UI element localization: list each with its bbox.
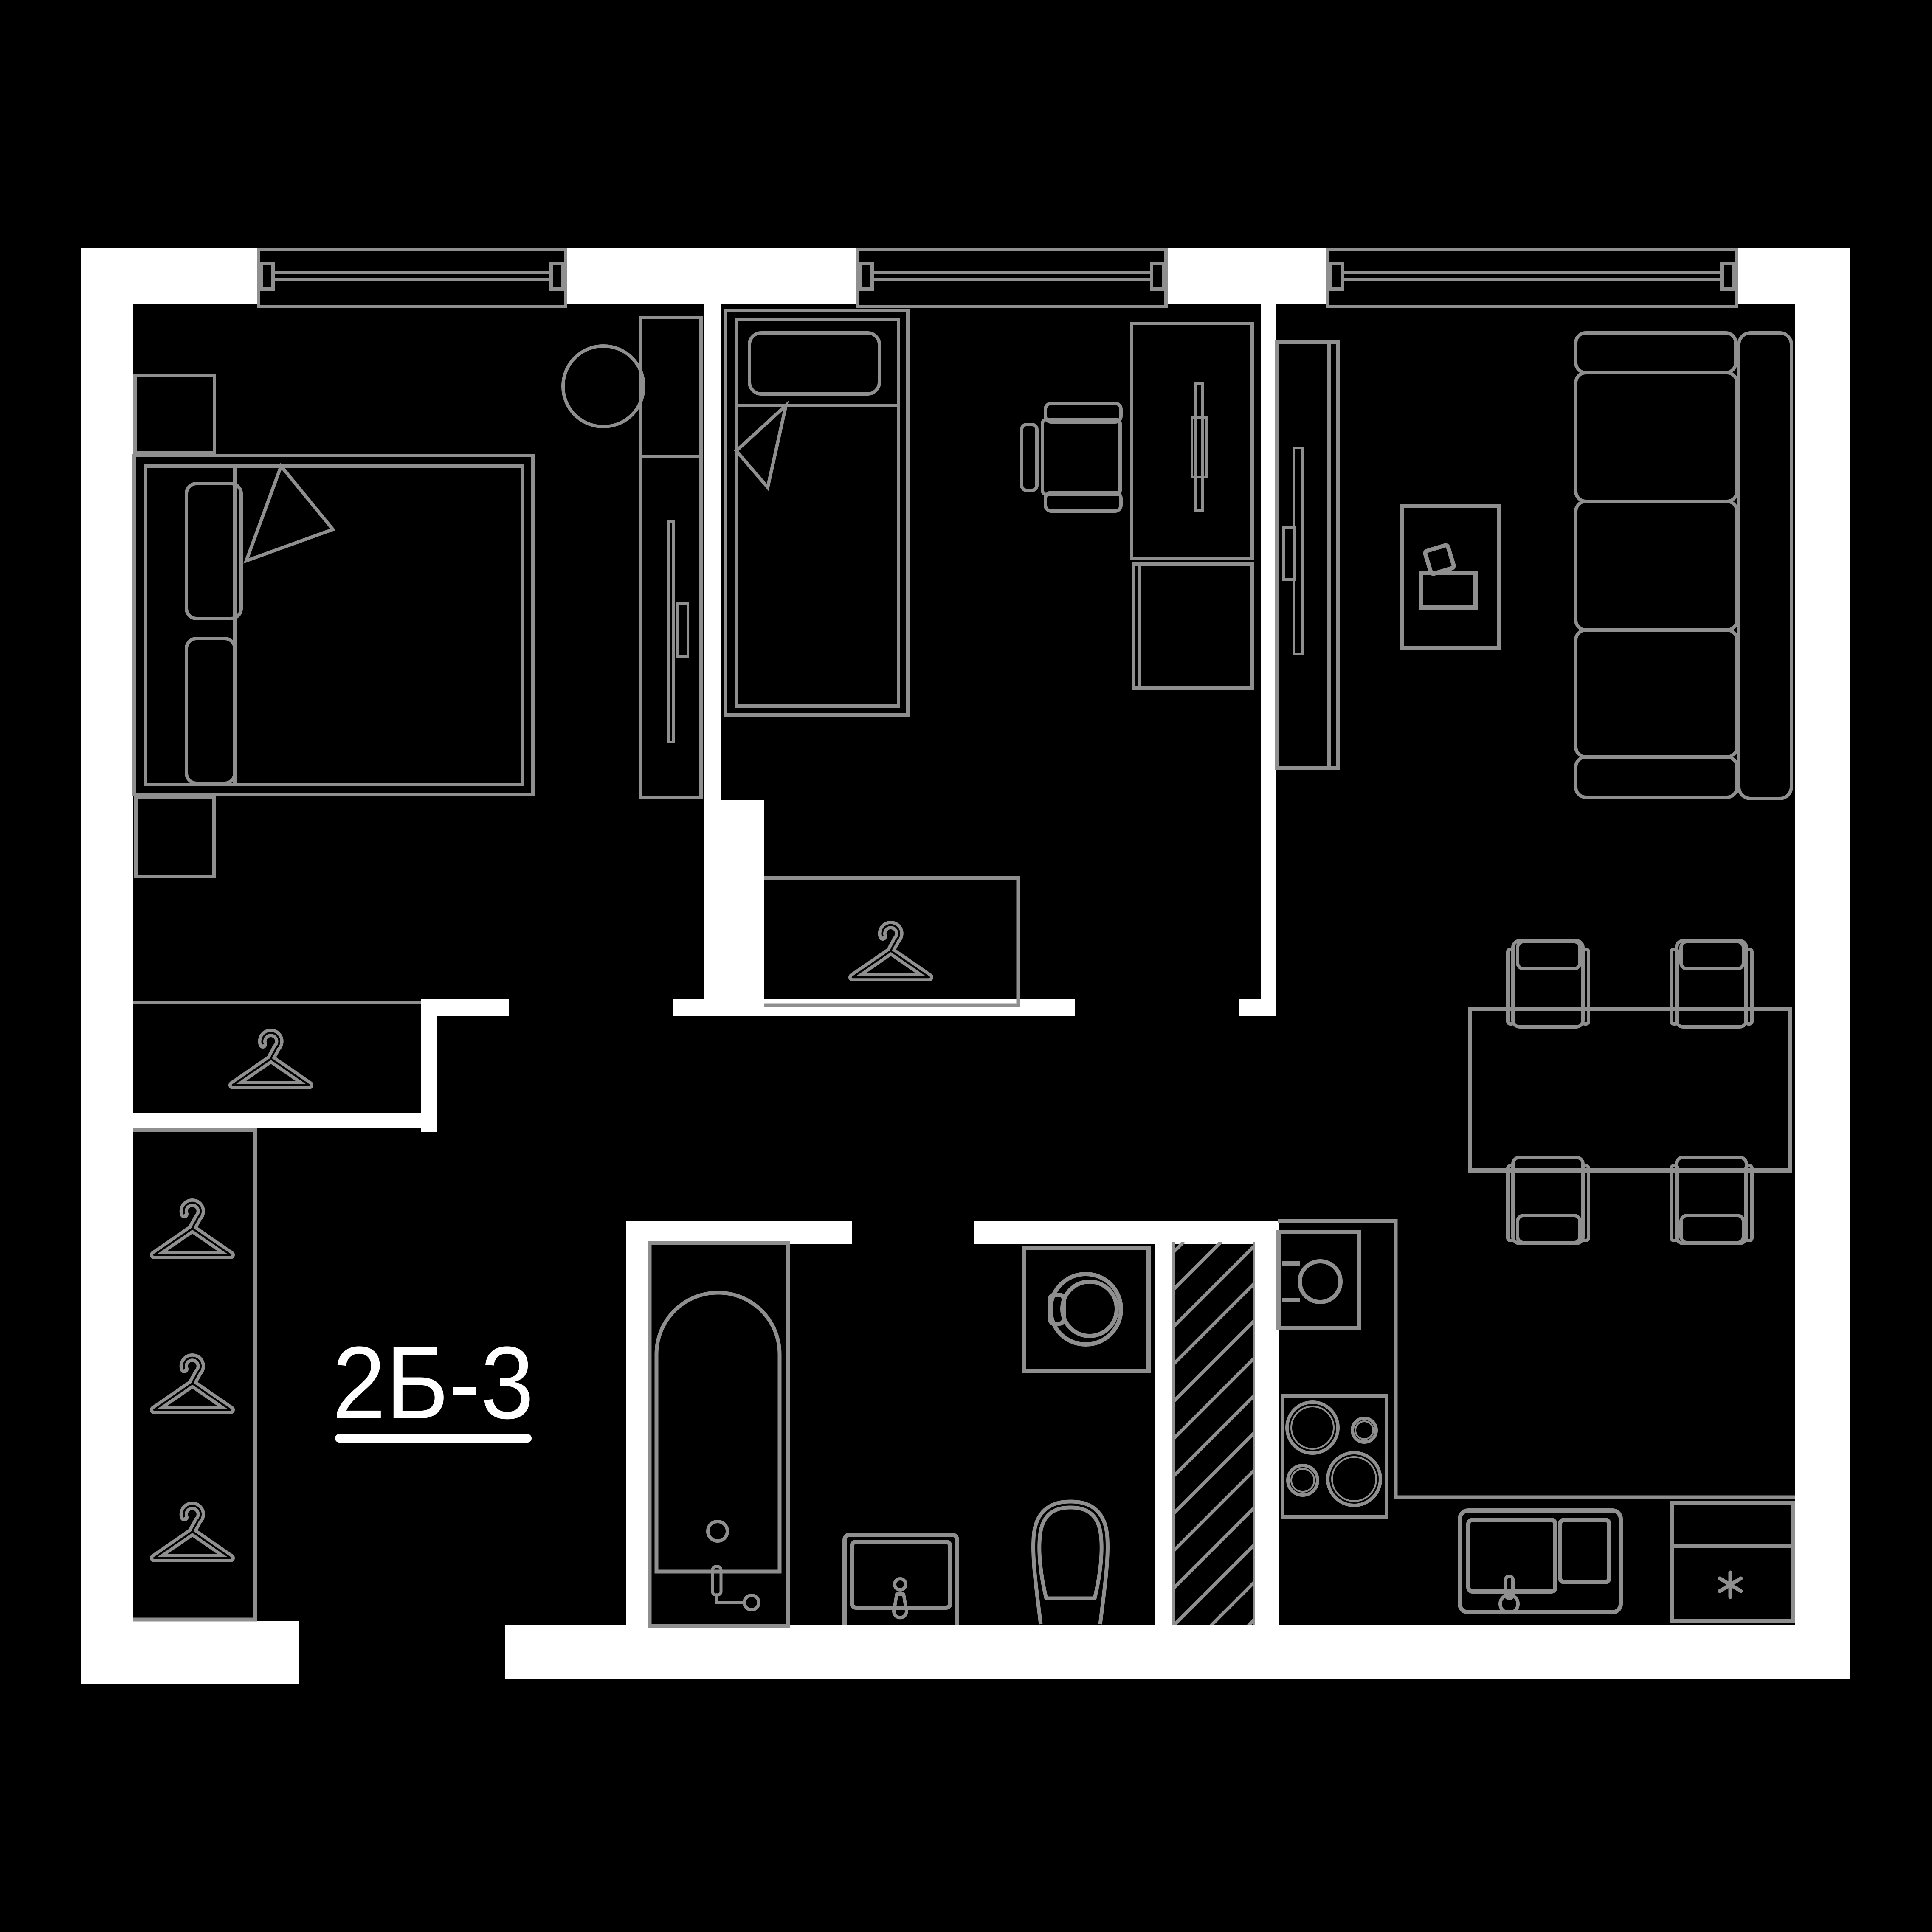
svg-text:2Б-3: 2Б-3 (332, 1325, 534, 1440)
